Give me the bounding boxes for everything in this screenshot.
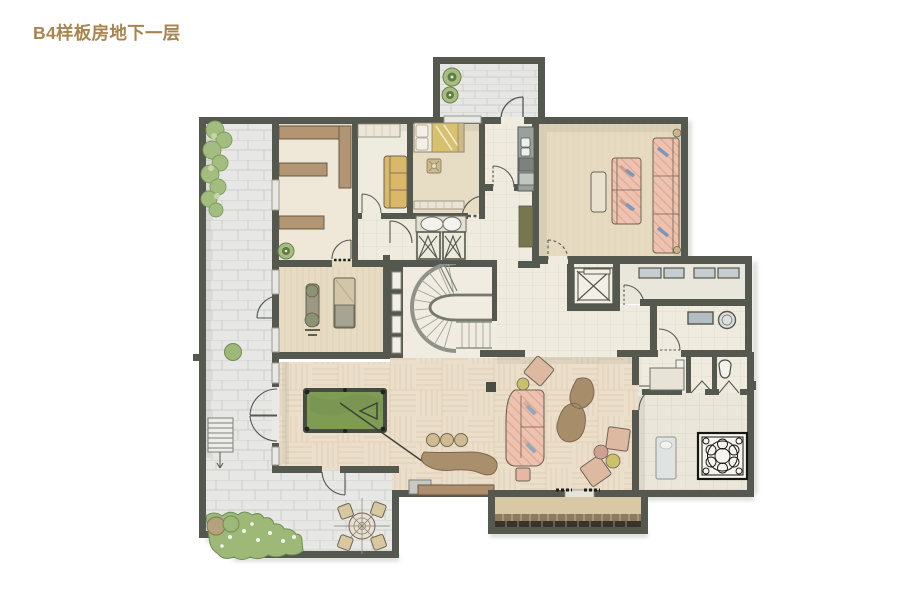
- svg-text:B4样板房地下一层: B4样板房地下一层: [33, 23, 181, 43]
